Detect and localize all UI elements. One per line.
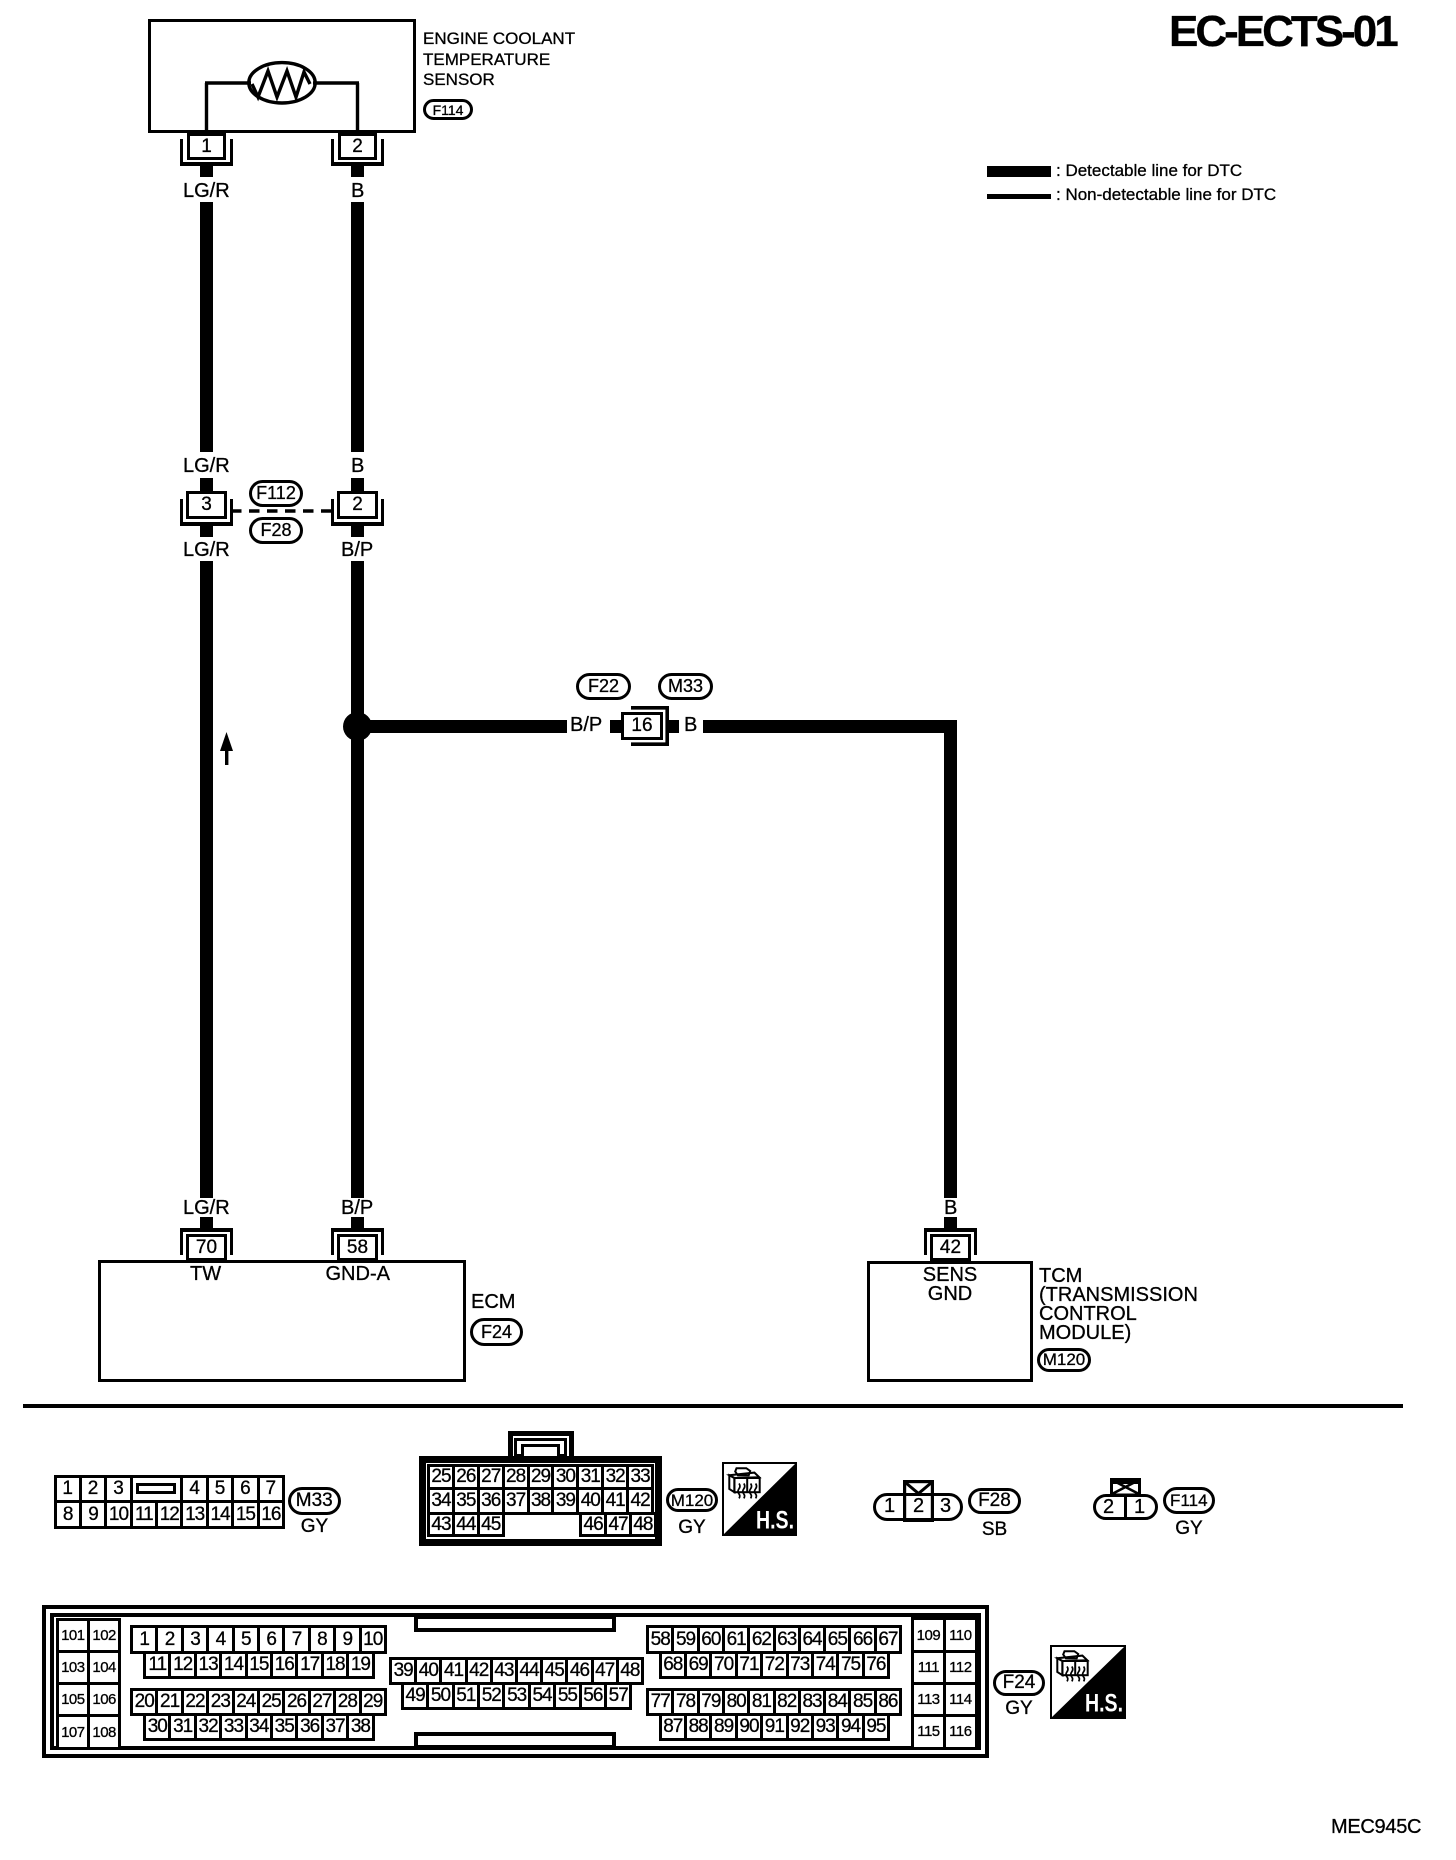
svg-text:H.S.: H.S. [756, 1507, 794, 1535]
svg-text:H.S.: H.S. [1085, 1689, 1123, 1717]
